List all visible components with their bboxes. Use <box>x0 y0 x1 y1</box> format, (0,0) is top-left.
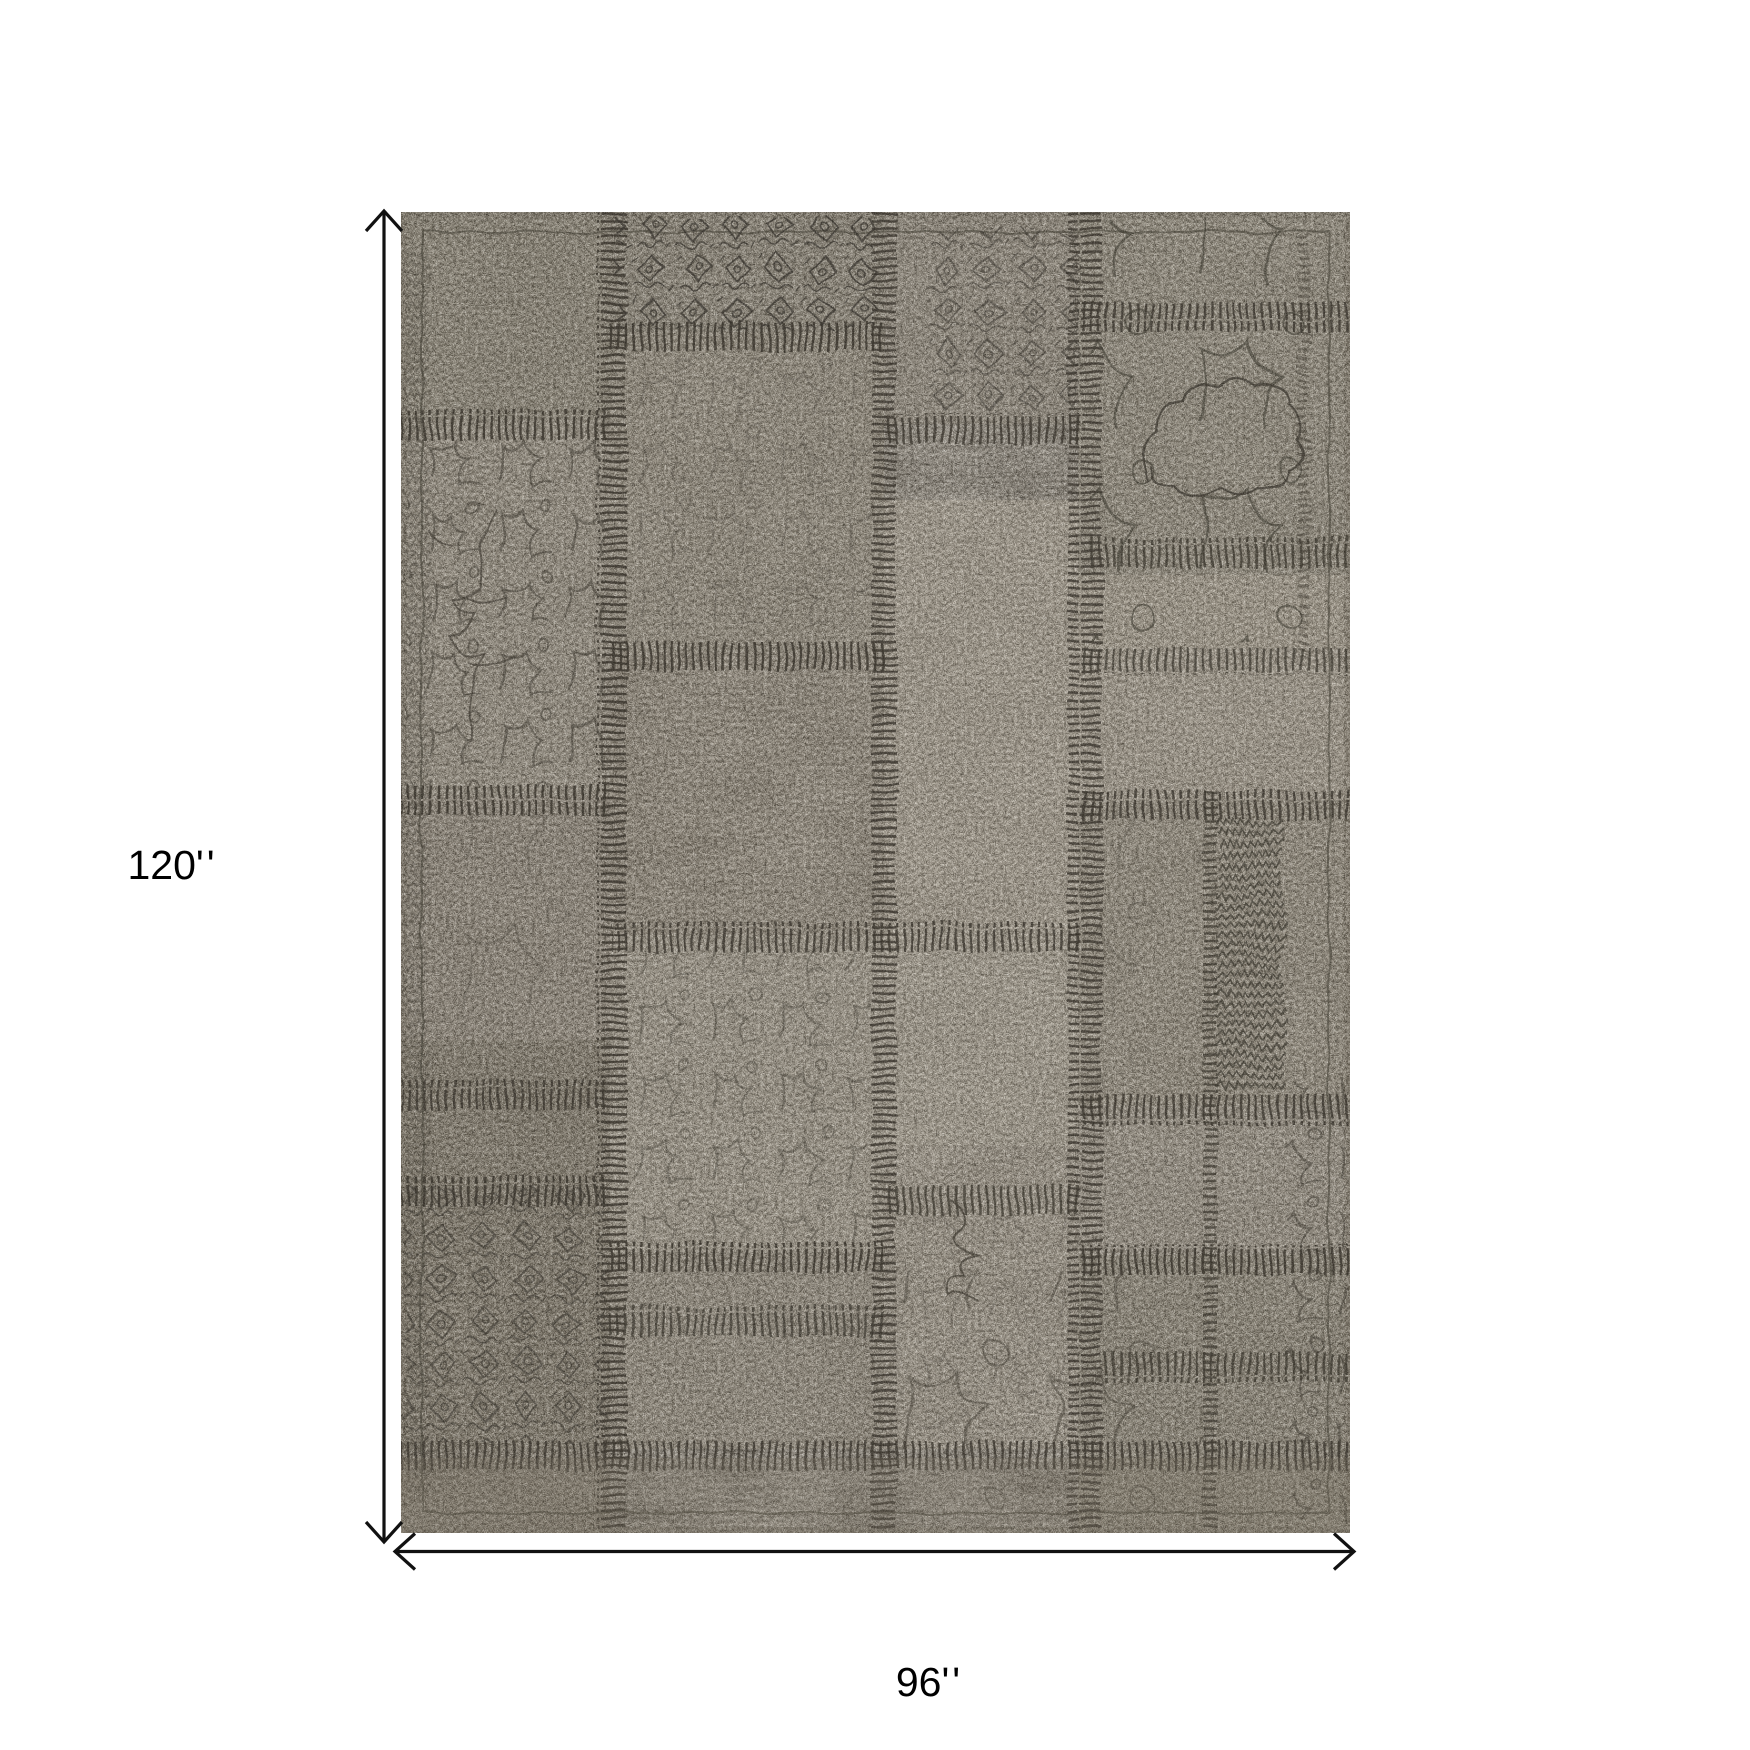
svg-text:96'': 96'' <box>896 1659 960 1705</box>
svg-text:120'': 120'' <box>127 842 214 888</box>
